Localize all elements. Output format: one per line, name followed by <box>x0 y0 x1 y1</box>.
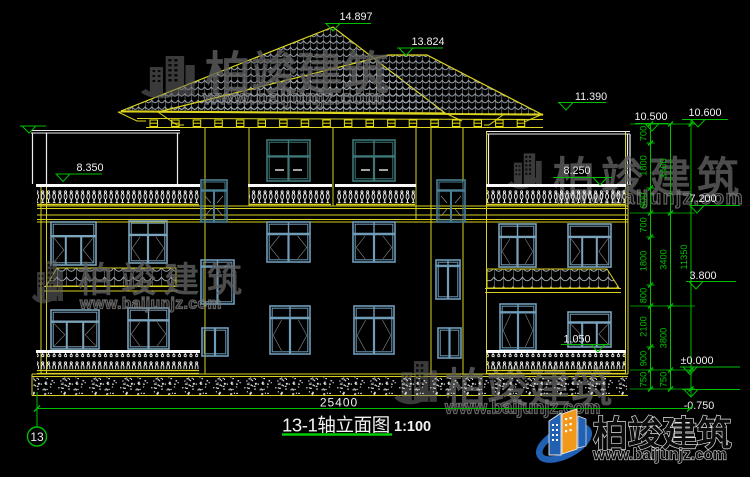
svg-text:柏竣建筑: 柏竣建筑 <box>78 260 250 300</box>
svg-text:10.500: 10.500 <box>634 111 667 123</box>
svg-text:±0.000: ±0.000 <box>681 355 714 367</box>
svg-text:750: 750 <box>639 372 649 388</box>
svg-text:800: 800 <box>639 288 649 304</box>
svg-text:900: 900 <box>639 351 649 367</box>
svg-text:750: 750 <box>659 372 669 388</box>
svg-text:900: 900 <box>639 193 649 209</box>
svg-text:1800: 1800 <box>639 155 649 176</box>
svg-text:www.baijunjz.com: www.baijunjz.com <box>79 296 222 313</box>
svg-text:3400: 3400 <box>659 158 669 179</box>
svg-text:1.050: 1.050 <box>563 334 590 346</box>
svg-text:11350: 11350 <box>679 244 689 269</box>
svg-text:www.baijunjz.com: www.baijunjz.com <box>592 447 727 464</box>
svg-text:13: 13 <box>30 430 44 444</box>
svg-text:3.800: 3.800 <box>689 270 716 282</box>
svg-text:700: 700 <box>639 217 649 233</box>
svg-text:11.390: 11.390 <box>575 91 607 103</box>
svg-text:700: 700 <box>639 126 649 142</box>
svg-text:10.600: 10.600 <box>688 107 721 119</box>
svg-text:13-1轴立面图: 13-1轴立面图 <box>282 415 390 436</box>
svg-text:3800: 3800 <box>659 328 669 349</box>
svg-text:1800: 1800 <box>639 251 649 272</box>
svg-text:13.824: 13.824 <box>411 36 444 48</box>
svg-text:8.250: 8.250 <box>563 165 590 177</box>
svg-text:3400: 3400 <box>659 249 669 270</box>
svg-text:8.350: 8.350 <box>76 162 103 174</box>
svg-text:2100: 2100 <box>639 316 649 337</box>
svg-text:7.200: 7.200 <box>689 193 716 205</box>
svg-text:14.897: 14.897 <box>339 11 372 23</box>
svg-text:1:100: 1:100 <box>394 419 431 435</box>
svg-text:25400: 25400 <box>320 396 358 410</box>
svg-text:www.baijunjz.com: www.baijunjz.com <box>202 88 383 109</box>
